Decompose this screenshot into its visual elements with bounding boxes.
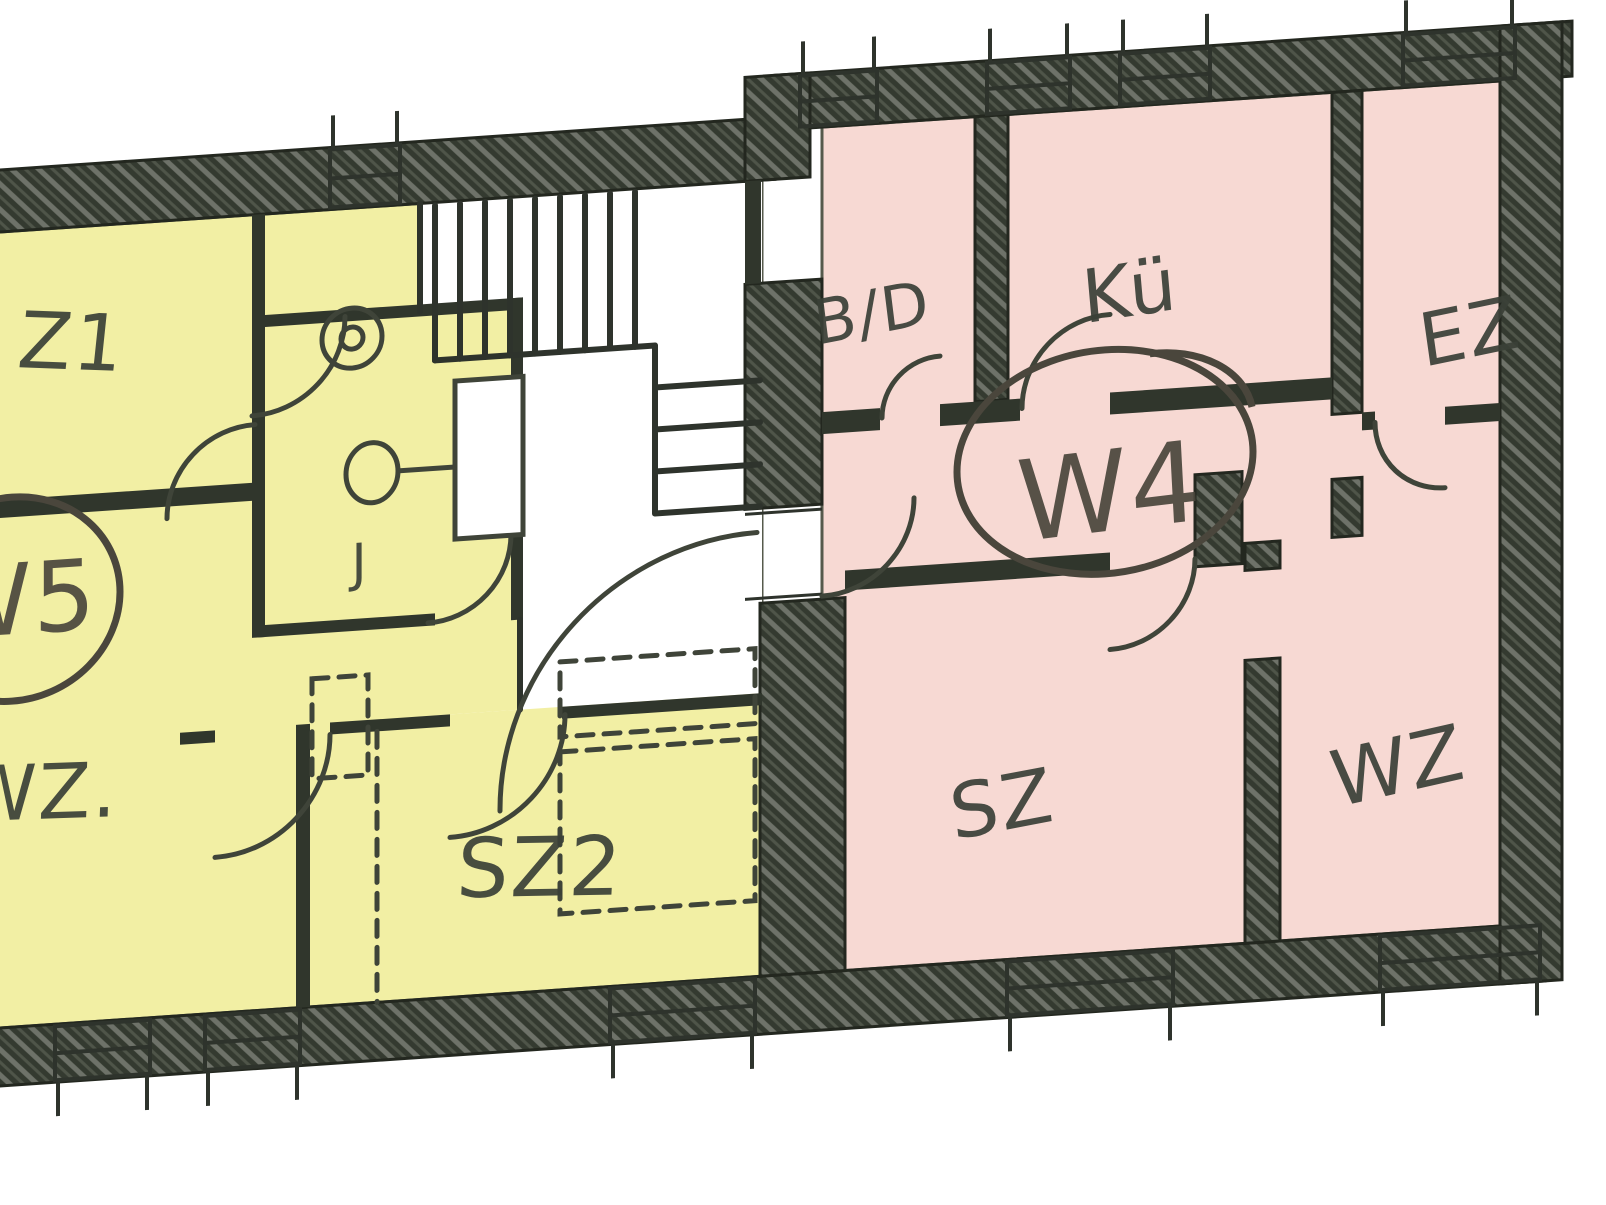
wall-right bbox=[1500, 22, 1562, 984]
wall-bd-kueche bbox=[975, 114, 1008, 401]
wall-bd-bottom-a bbox=[822, 408, 880, 434]
wall-wz-sz2 bbox=[296, 724, 310, 1008]
wall-kueche-ez-upper bbox=[1332, 90, 1362, 414]
wall-party-lower bbox=[760, 598, 845, 977]
apartment-badge-w5: W5 bbox=[0, 538, 98, 663]
wall-stair-party-thin bbox=[745, 180, 761, 284]
room-label-kueche: Kü bbox=[1079, 241, 1182, 341]
wall-ez-bottom-b bbox=[1445, 403, 1500, 425]
wall-kueche-ez-lower bbox=[1332, 477, 1362, 537]
shower-tub-icon bbox=[455, 376, 523, 539]
floor-plan-drawing: Z1 WZ. SZ2 J B/D Kü EZ SZ WZ W4 W5 bbox=[0, 0, 1606, 1205]
room-label-wc: J bbox=[348, 533, 368, 594]
wall-sz-wz-lower bbox=[1245, 658, 1280, 943]
room-label-wz-left: WZ. bbox=[0, 745, 120, 839]
room-label-z1: Z1 bbox=[14, 296, 130, 390]
apartment-badge-w4: W4 bbox=[1014, 417, 1207, 569]
room-label-sz2: SZ2 bbox=[454, 819, 625, 917]
wall-party-upper bbox=[745, 279, 822, 509]
wall-sz2-top-a bbox=[180, 730, 215, 744]
scanned-floor-plan-page: Z1 WZ. SZ2 J B/D Kü EZ SZ WZ W4 W5 bbox=[0, 0, 1606, 1205]
wall-sz-wz-upper bbox=[1245, 541, 1280, 570]
